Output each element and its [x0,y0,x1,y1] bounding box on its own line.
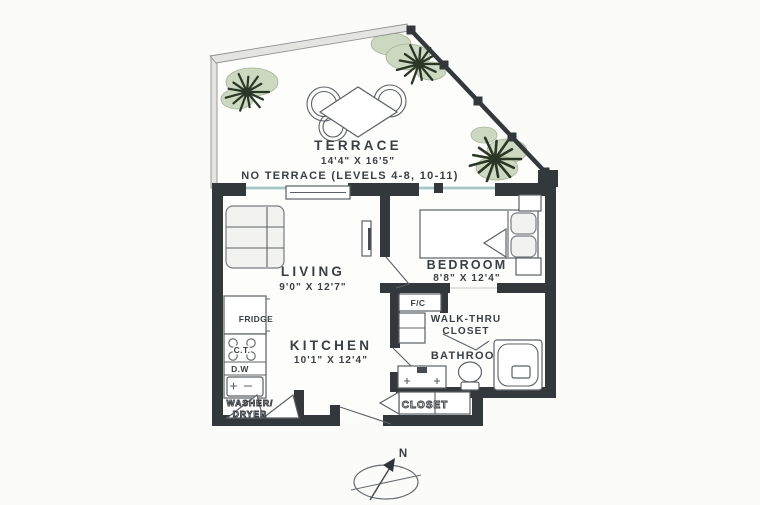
terrace-dimensions: 14'4" X 16'5" [321,156,395,167]
living-dimensions: 9'0" X 12'7" [279,282,346,293]
laundry-label-line1: WASHER/ [227,398,274,408]
right-wall [545,183,556,398]
entry-closet-label: CLOSET [402,400,449,411]
cooktop-label: C.T. [234,345,251,355]
entry-closet: CLOSET [380,392,470,414]
entry-step [330,405,340,426]
walk-thru-label-line1: WALK-THRU [431,314,501,325]
dishwasher-label: D.W [231,364,249,374]
kitchen-label: KITCHEN [290,338,372,353]
bedroom-bottom-wall-right [497,283,545,293]
living-bedroom-wall [380,195,390,257]
bathtub-seat [512,366,530,378]
terrace-label: TERRACE [314,138,402,153]
north-label: N [399,448,407,460]
nightstand [519,195,541,211]
floor-plan: TERRACE 14'4" X 16'5" NO TERRACE (LEVELS… [0,0,760,505]
bedroom-label: BEDROOM [427,258,508,272]
kitchen-dimensions: 10'1" X 12'4" [294,355,368,366]
laundry-label-line2: DRYER [233,409,267,419]
walk-thru-label-line2: CLOSET [442,326,489,337]
pillow [511,236,536,257]
fridge-label: FRIDGE [239,314,274,324]
left-wall [212,183,223,426]
toilet-base [461,382,479,390]
bathtub [494,340,542,390]
floor-plan-canvas: TERRACE 14'4" X 16'5" NO TERRACE (LEVELS… [0,0,760,505]
bedroom-bottom-wall-left [380,283,450,293]
window-post [434,183,443,193]
fan-coil-label: F/C [411,298,426,308]
terrace-note: NO TERRACE (LEVELS 4-8, 10-11) [241,170,459,182]
living-label: LIVING [281,264,345,279]
sofa [226,206,284,268]
pillow [511,213,536,234]
toilet [459,362,482,382]
vanity-faucet [417,367,427,373]
laundry-closet: WASHER/ DRYER [227,395,299,419]
closet-bottom-wall [383,415,483,426]
bedroom-dimensions: 8'8" X 12'4" [433,273,500,284]
bench [516,258,541,275]
terrace-side-wall [211,57,217,188]
tv-screen [368,228,371,250]
